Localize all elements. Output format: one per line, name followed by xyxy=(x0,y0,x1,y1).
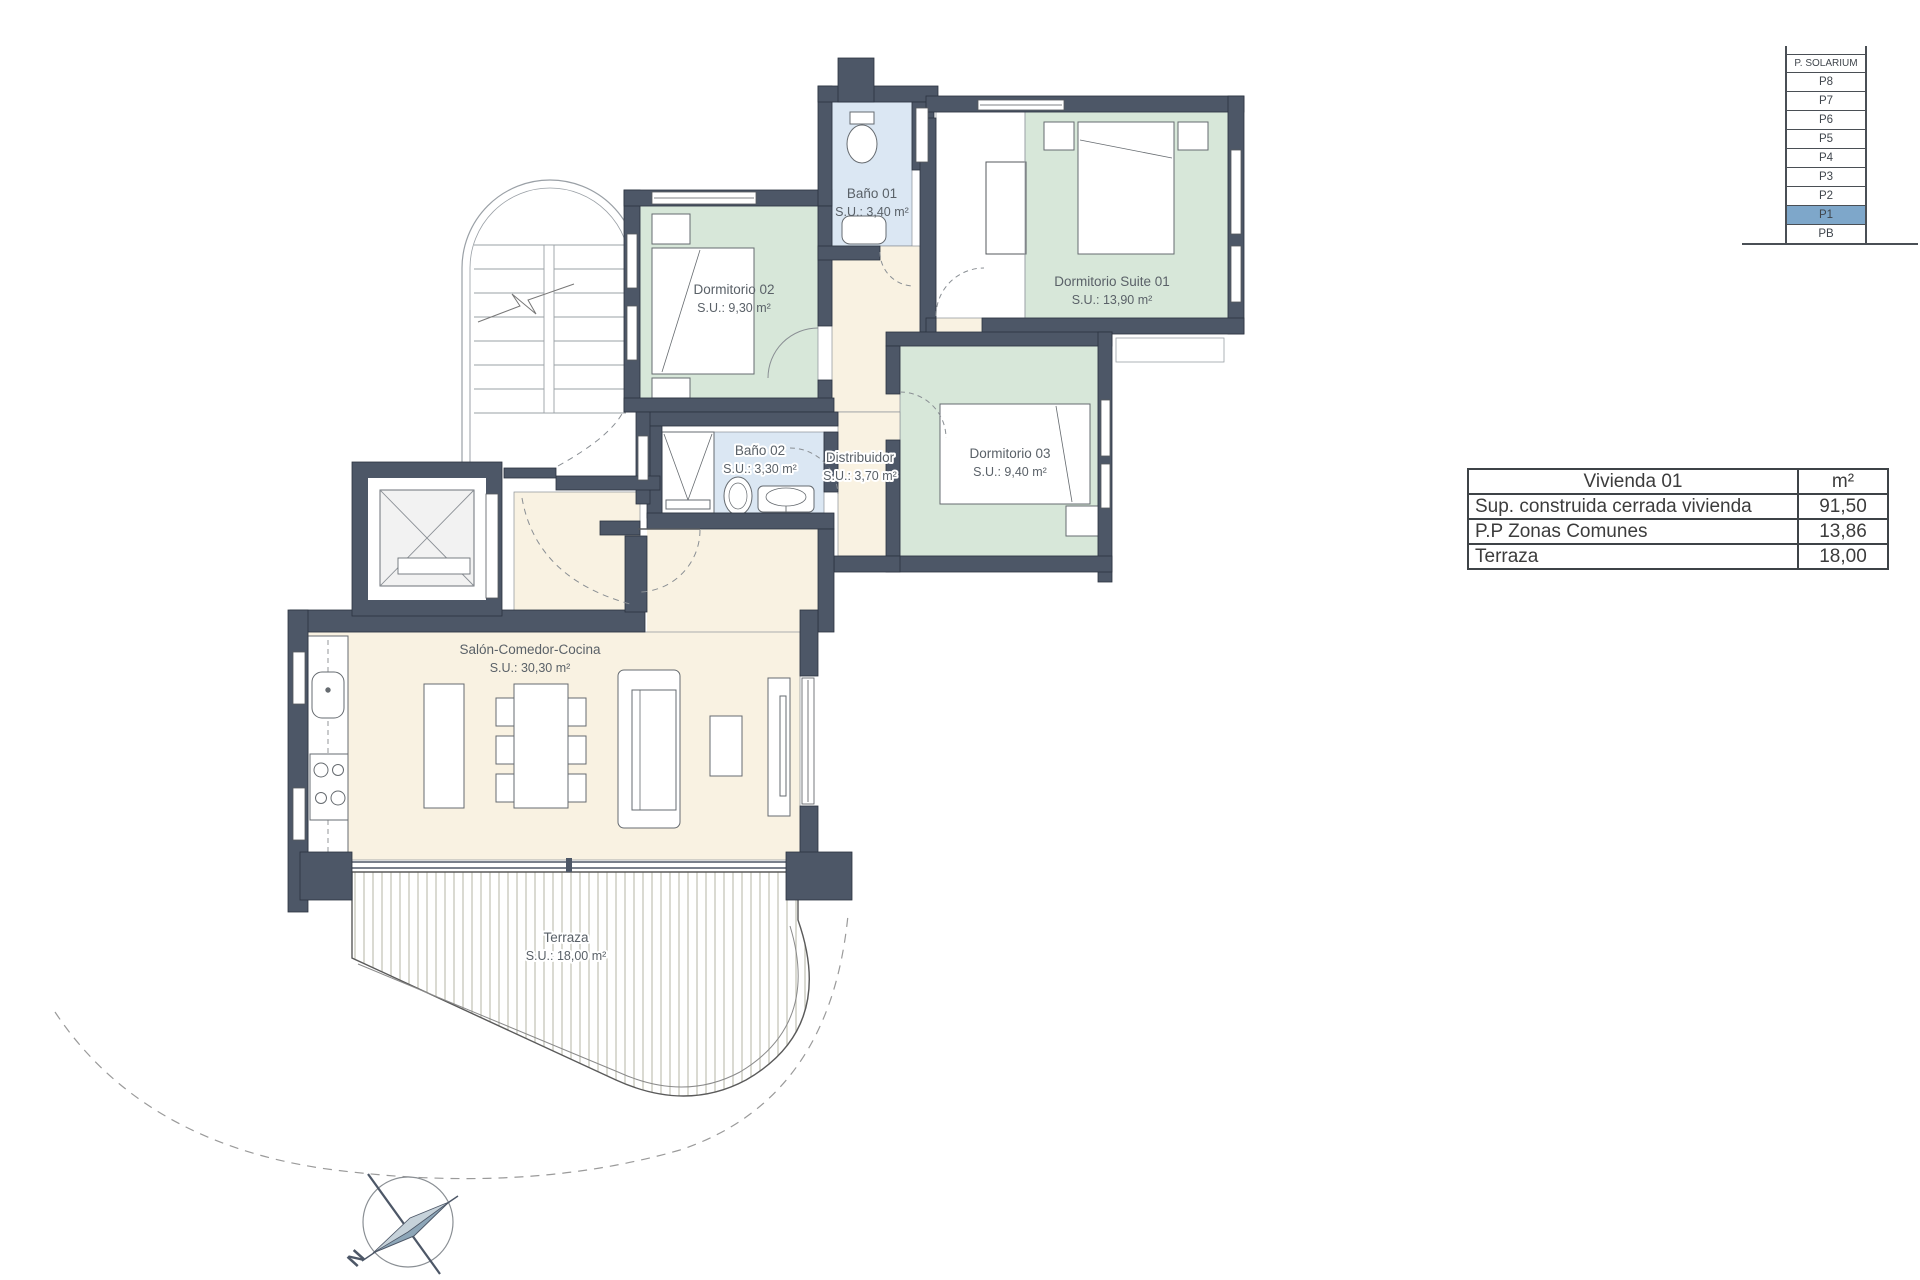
floor-row-p2[interactable]: P2 xyxy=(1787,187,1865,206)
ground-line xyxy=(1742,243,1918,245)
floor-row-p1-selected[interactable]: P1 xyxy=(1787,206,1865,225)
compass-north-arrow: N xyxy=(343,1174,458,1274)
table-row: Terraza 18,00 xyxy=(1468,544,1888,569)
terrace-deck xyxy=(55,872,848,1179)
table-row: Sup. construida cerrada vivienda 91,50 xyxy=(1468,494,1888,519)
label-dormitorio-03: Dormitorio 03 xyxy=(969,446,1050,461)
floor-row-p4[interactable]: P4 xyxy=(1787,149,1865,168)
floor-row-p7[interactable]: P7 xyxy=(1787,92,1865,111)
floor-plan-drawing: Dormitorio 02 S.U.: 9,30 m² Baño 01 S.U.… xyxy=(0,0,1920,1280)
floor-selector: P. SOLARIUM P8 P7 P6 P5 P4 P3 P2 P1 PB xyxy=(1785,46,1867,244)
bed-suite xyxy=(1078,122,1174,254)
label-salon: Salón-Comedor-Cocina xyxy=(459,642,601,657)
floor-row-p8[interactable]: P8 xyxy=(1787,73,1865,92)
svg-text:S.U.: 3,40 m²: S.U.: 3,40 m² xyxy=(835,205,909,219)
svg-text:S.U.: 30,30 m²: S.U.: 30,30 m² xyxy=(490,661,571,675)
compass-n-label: N xyxy=(343,1246,369,1271)
kitchen-island xyxy=(424,684,464,808)
label-dormitorio-02: Dormitorio 02 xyxy=(693,282,774,297)
entry-hall xyxy=(514,492,640,612)
floor-row-solarium[interactable]: P. SOLARIUM xyxy=(1787,54,1865,73)
door-arc-entry xyxy=(558,410,624,466)
floor-row-p6[interactable]: P6 xyxy=(1787,111,1865,130)
tv-unit xyxy=(768,678,790,816)
table-row: P.P Zonas Comunes 13,86 xyxy=(1468,519,1888,544)
area-table-unit: m² xyxy=(1798,469,1888,494)
area-table-title: Vivienda 01 xyxy=(1468,469,1798,494)
svg-text:S.U.: 3,70 m²: S.U.: 3,70 m² xyxy=(823,469,897,483)
kitchen-sink xyxy=(312,672,344,718)
label-distribuidor: Distribuidor xyxy=(826,450,895,465)
label-bano-02: Baño 02 xyxy=(735,443,785,458)
label-bano-01: Baño 01 xyxy=(847,186,897,201)
kitchen-hob xyxy=(310,754,348,820)
area-table: Vivienda 01 m² Sup. construida cerrada v… xyxy=(1467,468,1889,570)
dining-table xyxy=(514,684,568,808)
svg-text:S.U.: 18,00 m²: S.U.: 18,00 m² xyxy=(526,949,607,963)
elevator xyxy=(368,478,498,600)
label-suite-01: Dormitorio Suite 01 xyxy=(1054,274,1170,289)
svg-text:S.U.: 9,40 m²: S.U.: 9,40 m² xyxy=(973,465,1047,479)
exterior-ledge xyxy=(1116,338,1224,362)
floor-row-pb[interactable]: PB xyxy=(1787,225,1865,244)
svg-text:S.U.: 9,30 m²: S.U.: 9,30 m² xyxy=(697,301,771,315)
svg-text:S.U.: 3,30 m²: S.U.: 3,30 m² xyxy=(723,462,797,476)
floor-row-p5[interactable]: P5 xyxy=(1787,130,1865,149)
floor-row-p3[interactable]: P3 xyxy=(1787,168,1865,187)
svg-text:S.U.: 13,90 m²: S.U.: 13,90 m² xyxy=(1072,293,1153,307)
suite-closet xyxy=(986,162,1026,254)
floor-plan-page: Dormitorio 02 S.U.: 9,30 m² Baño 01 S.U.… xyxy=(0,0,1920,1280)
coffee-table xyxy=(710,716,742,776)
label-terraza: Terraza xyxy=(543,930,589,945)
